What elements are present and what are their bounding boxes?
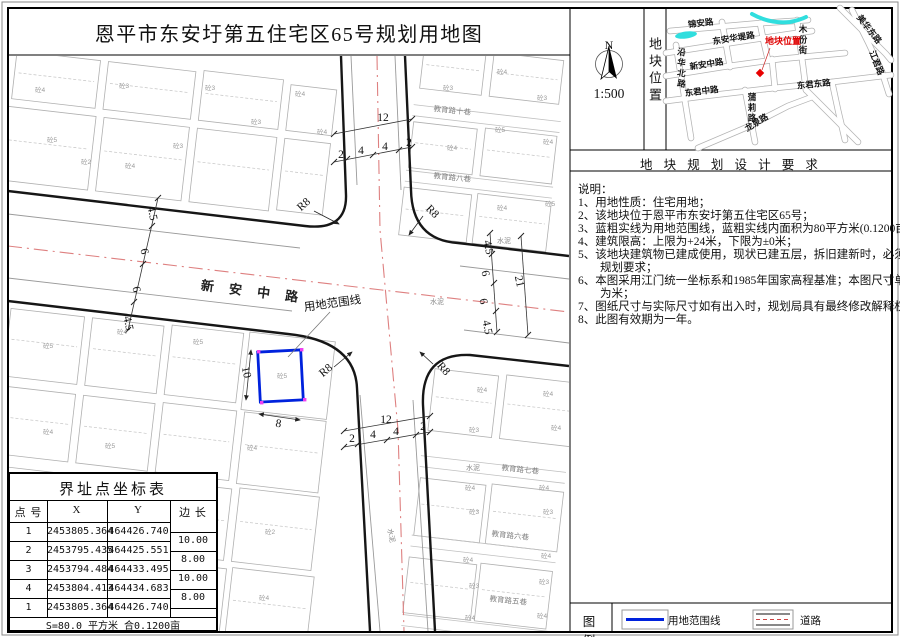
table-cell: 4 — [10, 583, 47, 594]
sheet-title: 恩平市东安圩第五住宅区65号规划用地图 — [8, 18, 570, 47]
map-label: 砼4 — [43, 427, 54, 436]
map-label: 砼3 — [443, 83, 454, 92]
map-label: 砼3 — [251, 117, 262, 126]
table-line — [47, 500, 48, 617]
table-line — [10, 560, 170, 561]
map-label: 砼4 — [465, 613, 476, 622]
building-block — [0, 106, 96, 190]
requirement-line: 7、图纸尺寸与实际尺寸如有出入时，规划局具有最终修改解释权； — [578, 301, 888, 314]
table-cell: 10.00 — [170, 535, 216, 546]
table-line — [10, 500, 216, 501]
legend-title: 图 例 — [570, 611, 614, 637]
plot-location-side-label: 地块位置 — [645, 37, 664, 117]
boundary-coordinate-table: 界址点坐标表 点 号 X Y 边 长 12453805.364464426.74… — [8, 472, 218, 632]
north-label: N — [598, 38, 620, 53]
map-label: 水泥 — [430, 297, 444, 306]
building-block — [485, 484, 563, 552]
map-label: 砼3 — [173, 141, 184, 150]
map-label: 街 — [798, 45, 808, 55]
legend-boundary-label: 用地范围线 — [668, 613, 758, 628]
map-label: 砼3 — [543, 507, 554, 516]
table-line — [170, 570, 216, 571]
map-label: 砼5 — [193, 337, 204, 346]
map-label: 木 — [798, 24, 808, 34]
table-cell: 464426.740 — [107, 602, 170, 613]
table-cell: 1 — [10, 526, 47, 537]
building-block — [0, 386, 76, 462]
table-line — [10, 541, 170, 542]
map-label: 莉 — [748, 103, 757, 113]
map-label: 砼4 — [551, 423, 562, 432]
map-label: 路 — [748, 113, 757, 123]
planning-map-sheet: 新 安 中 路用地范围线1224421224424.5664.54.5664.5… — [0, 0, 900, 637]
requirement-line: 说明： — [578, 184, 888, 197]
scale-label: 1:500 — [585, 86, 633, 102]
map-label: 12 — [377, 112, 389, 124]
map-label: 2 — [406, 137, 412, 149]
table-cell: 2453804.413 — [47, 583, 107, 594]
map-label: 砼4 — [539, 483, 550, 492]
map-label: 砼4 — [543, 389, 554, 398]
map-label: 4 — [382, 141, 388, 153]
table-line — [10, 522, 170, 523]
building-block — [480, 128, 557, 184]
map-label: 2 — [349, 433, 355, 445]
map-label: 砼3 — [205, 83, 216, 92]
table-cell: 2453794.484 — [47, 564, 107, 575]
building-block — [198, 71, 283, 130]
table-cell: 10.00 — [170, 573, 216, 584]
coord-table-footer: S=80.0 平方米 合0.1200亩 — [10, 617, 216, 632]
map-label: 2 — [420, 421, 426, 433]
map-label: 砼4 — [463, 555, 474, 564]
map-label: 4 — [370, 429, 376, 441]
table-line — [170, 589, 216, 590]
location-minimap: 锦安路东安华堤路新安中路东君中路东君东路龙泉路美华东路江君路木份街蒲莉路沿华北路… — [666, 8, 891, 149]
coord-table-body: 12453805.364464426.74022453795.435464425… — [10, 474, 216, 630]
table-line — [170, 532, 216, 533]
building-block — [103, 62, 196, 120]
map-label: 砼5 — [47, 135, 58, 144]
map-label: 砼5 — [277, 371, 288, 380]
requirement-line: 8、此图有效期为一年。 — [578, 314, 888, 327]
table-cell: 464425.551 — [107, 545, 170, 556]
table-cell: 464434.683 — [107, 583, 170, 594]
requirements-notes: 说明：1、用地性质：住宅用地；2、该地块位于恩平市东安圩第五住宅区65号；3、蓝… — [578, 184, 888, 327]
map-label: 砼2 — [81, 157, 92, 166]
map-label: 砼4 — [477, 385, 488, 394]
map-label: 砼5 — [545, 199, 556, 208]
building-block — [76, 395, 155, 471]
map-label: 砼5 — [495, 125, 506, 134]
table-cell: 2 — [10, 545, 47, 556]
table-cell: 3 — [10, 564, 47, 575]
table-line — [170, 551, 216, 552]
map-label: 12 — [380, 414, 392, 426]
map-label: 地块位置 — [765, 35, 801, 46]
map-label: 砼3 — [469, 425, 480, 434]
table-cell: 1 — [10, 602, 47, 613]
map-label: 砼5 — [43, 341, 54, 350]
building-block — [499, 375, 578, 447]
building-block — [164, 325, 244, 403]
table-cell: 2453805.364 — [47, 526, 107, 537]
requirement-line: 3、蓝粗实线为用地范围线，蓝粗实线内面积为80平方米(0.1200亩)； — [578, 223, 888, 236]
map-label: 水泥 — [497, 236, 511, 245]
map-label: 4.5 — [145, 205, 160, 222]
building-block — [408, 122, 477, 175]
map-label: 砼3 — [537, 93, 548, 102]
map-label: 6 — [476, 297, 489, 305]
map-label: 砼4 — [497, 203, 508, 212]
block-zone — [399, 44, 568, 252]
map-label: 砼3 — [469, 507, 480, 516]
map-label: 砼4 — [537, 611, 548, 620]
building-block — [224, 568, 314, 637]
table-cell: 2453805.364 — [47, 602, 107, 613]
table-cell: 8.00 — [170, 592, 216, 603]
map-label: 21 — [512, 275, 526, 289]
map-label: 砼4 — [125, 161, 136, 170]
table-cell: 8.00 — [170, 554, 216, 565]
map-label: 蒲 — [748, 92, 757, 102]
requirement-line: 4、建筑限高：上限为+24米，下限为±0米； — [578, 236, 888, 249]
map-label: 用地范围线 — [303, 292, 362, 314]
map-label: 砼4 — [317, 127, 328, 136]
map-label: 砼4 — [543, 137, 554, 146]
requirement-line: 2、该地块位于恩平市东安圩第五住宅区65号； — [578, 210, 888, 223]
map-label: 2 — [338, 149, 344, 161]
block-zone — [0, 49, 337, 217]
map-label: 砼4 — [541, 551, 552, 560]
table-cell: 2453795.435 — [47, 545, 107, 556]
map-label: 4 — [393, 426, 399, 438]
map-label: 4.5 — [480, 319, 495, 336]
requirement-line: 5、该地块建筑物已建成使用，现状已建五层，拆旧建新时，必须符合 — [578, 249, 888, 262]
map-label: 4.5 — [481, 239, 496, 256]
requirement-line: 6、本图采用江门统一坐标系和1985年国家高程基准；本图尺寸单位 — [578, 275, 888, 288]
map-label: 砼4 — [117, 327, 128, 336]
map-label: 教育路七巷 — [501, 462, 540, 476]
map-label: 砼4 — [497, 67, 508, 76]
map-label: 砼4 — [259, 593, 270, 602]
map-label: 砼3 — [539, 577, 550, 586]
table-cell: 464426.740 — [107, 526, 170, 537]
map-label: 4 — [358, 145, 364, 157]
map-label: 砼4 — [447, 143, 458, 152]
map-label: 水泥 — [466, 463, 480, 472]
map-label: 砼4 — [35, 85, 46, 94]
table-line — [107, 500, 108, 617]
legend-road-label: 道路 — [800, 613, 844, 628]
map-label: 砼4 — [295, 89, 306, 98]
map-label: 6 — [478, 269, 491, 277]
map-label: 水泥 — [386, 528, 398, 544]
building-block — [489, 53, 564, 105]
table-line — [10, 579, 170, 580]
table-line — [170, 608, 216, 609]
requirement-line: 规划要求； — [578, 262, 888, 275]
map-label: 新 安 中 路 — [200, 278, 305, 306]
map-label: 砼4 — [465, 483, 476, 492]
requirement-line: 为米； — [578, 288, 888, 301]
map-label: 砼3 — [469, 581, 480, 590]
map-label: 6 — [137, 247, 150, 255]
map-label: 教育路十巷 — [433, 103, 472, 117]
table-cell: 464433.495 — [107, 564, 170, 575]
map-label: 砼4 — [247, 443, 258, 452]
building-block — [12, 51, 101, 108]
table-line — [10, 598, 170, 599]
map-label: 砼5 — [105, 441, 116, 450]
requirements-header: 地 块 规 划 设 计 要 求 — [570, 154, 892, 173]
requirement-line: 1、用地性质：住宅用地； — [578, 197, 888, 210]
building-block — [286, 85, 337, 136]
map-label: 砼3 — [119, 81, 130, 90]
map-label: 砼2 — [265, 527, 276, 536]
